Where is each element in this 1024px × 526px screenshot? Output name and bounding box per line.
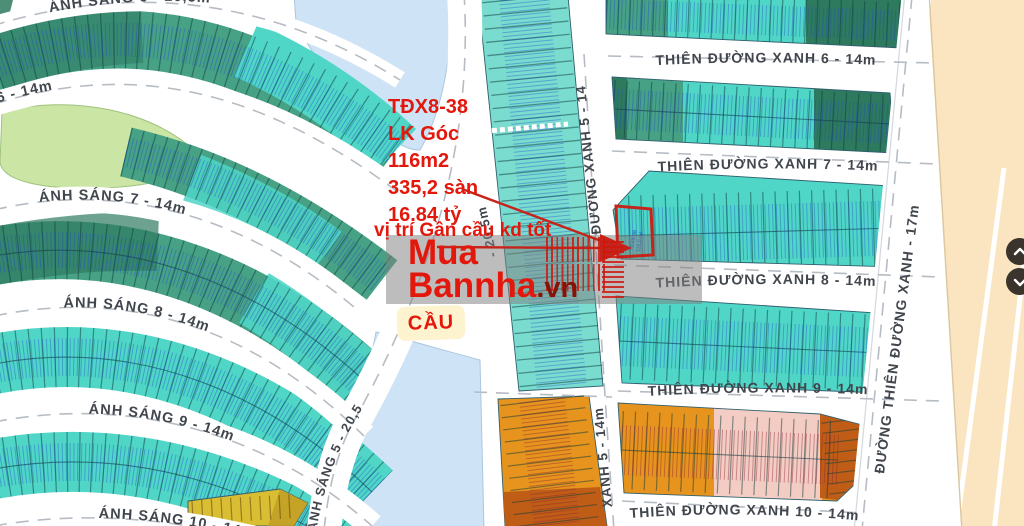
lot-column-asa-orange [498, 396, 607, 526]
street-label-tdx7: THIÊN ĐƯỜNG XANH 7 - 14m [657, 155, 879, 175]
street-label-tdx10: THIÊN ĐƯỜNG XANH 10 - 14m [629, 500, 860, 523]
lot-row-tdx-6-7 [605, 70, 905, 165]
annotation-line: 116m2 [388, 148, 478, 175]
watermark-line2: Bannha [408, 266, 536, 305]
lot-row-tdx-9-10 [610, 395, 880, 510]
real-estate-master-plan-map: ÁNH SÁNG 6 - 20,5m 6 - 14m ÁNH SÁNG 7 - … [0, 0, 1024, 526]
undeveloped-peach-zone [928, 0, 1024, 526]
watermark-logo: Mua Bannha.vn [408, 236, 578, 305]
street-label-tdx6: THIÊN ĐƯỜNG XANH 6 - 14m [655, 49, 877, 69]
chevron-up-icon [1011, 243, 1024, 261]
watermark-suffix: .vn [536, 272, 578, 304]
listing-annotation: TĐX8-38 LK Góc 116m2 335,2 sàn 16.84 tỷ [388, 94, 478, 229]
chevron-down-icon [1011, 273, 1024, 291]
bridge-label: CẦU [396, 305, 465, 341]
annotation-line: TĐX8-38 [388, 94, 478, 121]
annotation-line: LK Góc [388, 121, 478, 148]
annotation-line: 335,2 sàn [388, 175, 478, 202]
red-scribble [602, 238, 624, 298]
